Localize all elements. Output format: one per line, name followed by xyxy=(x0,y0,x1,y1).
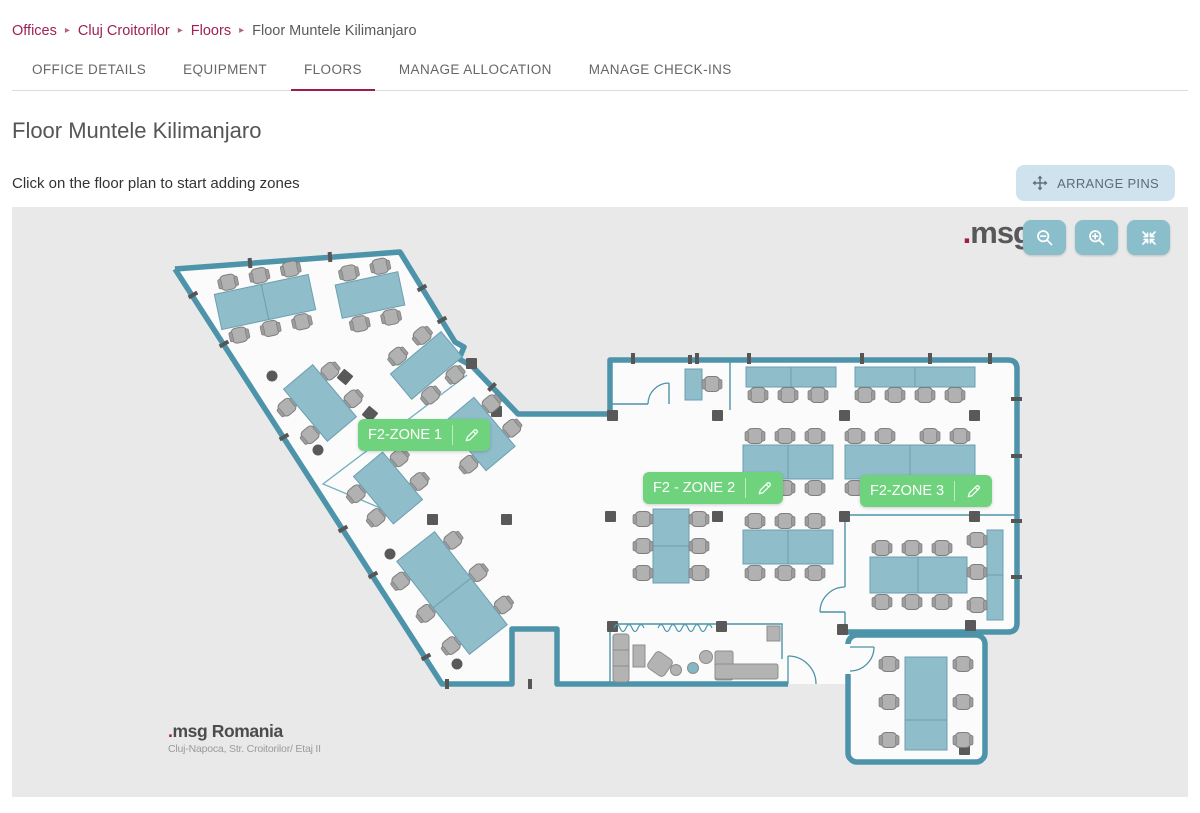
floor-plan[interactable] xyxy=(12,207,1188,797)
breadcrumb-separator-icon: ▸ xyxy=(65,26,70,36)
tab-manage-allocation[interactable]: MANAGE ALLOCATION xyxy=(399,52,552,90)
plan-watermark-address: Cluj-Napoca, Str. Croitorilor/ Etaj II xyxy=(168,743,321,755)
breadcrumb: Offices ▸ Cluj Croitorilor ▸ Floors ▸ Fl… xyxy=(12,0,1188,39)
zone-divider xyxy=(954,481,955,501)
instruction-text: Click on the floor plan to start adding … xyxy=(12,175,300,192)
edit-zone-icon[interactable] xyxy=(756,480,773,497)
arrange-pins-label: ARRANGE PINS xyxy=(1057,176,1159,191)
page-title: Floor Muntele Kilimanjaro xyxy=(12,118,1188,144)
zone-pin-f2-zone-3[interactable]: F2-ZONE 3 xyxy=(860,475,992,507)
zoom-out-icon xyxy=(1035,228,1055,248)
arrange-pins-button[interactable]: ARRANGE PINS xyxy=(1016,165,1175,201)
plan-watermark-name: .msg Romania xyxy=(168,721,321,742)
tab-office-details[interactable]: OFFICE DETAILS xyxy=(32,52,146,90)
compress-icon xyxy=(1140,229,1158,247)
edit-zone-icon[interactable] xyxy=(965,483,982,500)
breadcrumb-separator-icon: ▸ xyxy=(178,26,183,36)
edit-zone-icon[interactable] xyxy=(463,427,480,444)
zoom-in-button[interactable] xyxy=(1075,220,1118,255)
breadcrumb-link-offices[interactable]: Offices xyxy=(12,23,57,39)
zoom-out-button[interactable] xyxy=(1023,220,1066,255)
breadcrumb-current: Floor Muntele Kilimanjaro xyxy=(252,23,416,39)
floor-plan-canvas[interactable]: .msg xyxy=(12,207,1188,797)
map-controls xyxy=(1023,220,1170,255)
zoom-in-icon xyxy=(1087,228,1107,248)
tab-bar: OFFICE DETAILS EQUIPMENT FLOORS MANAGE A… xyxy=(12,52,1188,91)
breadcrumb-separator-icon: ▸ xyxy=(239,26,244,36)
zone-label: F2-ZONE 3 xyxy=(870,483,944,499)
breadcrumb-link-floors[interactable]: Floors xyxy=(191,23,231,39)
zone-label: F2 - ZONE 2 xyxy=(653,480,735,496)
breadcrumb-link-office[interactable]: Cluj Croitorilor xyxy=(78,23,170,39)
plan-watermark: .msg Romania Cluj-Napoca, Str. Croitoril… xyxy=(168,721,321,755)
zone-pin-f2-zone-1[interactable]: F2-ZONE 1 xyxy=(358,419,490,451)
zone-divider xyxy=(452,425,453,445)
tab-manage-check-ins[interactable]: MANAGE CHECK-INS xyxy=(589,52,732,90)
zone-label: F2-ZONE 1 xyxy=(368,427,442,443)
zone-pin-f2-zone-2[interactable]: F2 - ZONE 2 xyxy=(643,472,783,504)
msg-logo: .msg xyxy=(963,217,1031,248)
move-icon xyxy=(1032,175,1048,191)
tab-floors[interactable]: FLOORS xyxy=(304,52,362,90)
zone-divider xyxy=(745,478,746,498)
tab-equipment[interactable]: EQUIPMENT xyxy=(183,52,267,90)
fit-view-button[interactable] xyxy=(1127,220,1170,255)
